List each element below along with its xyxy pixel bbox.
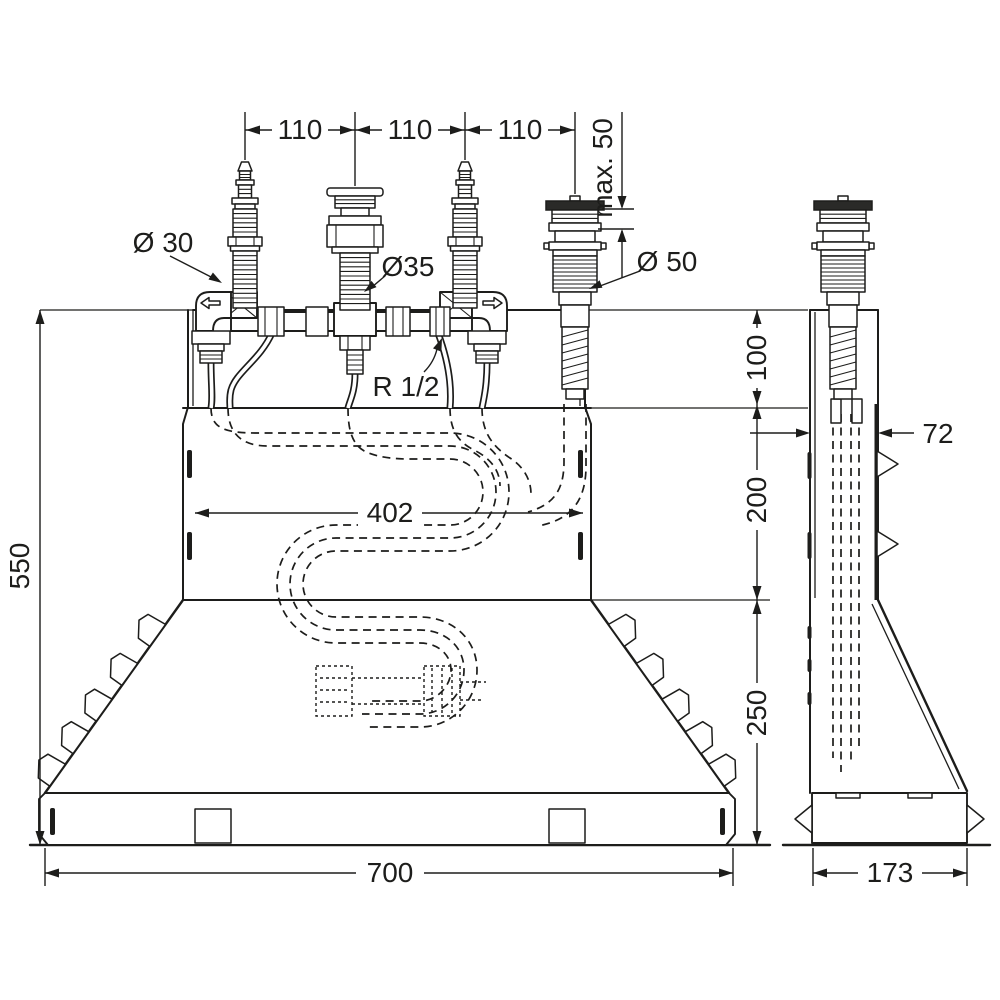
dim-spacing-2: 110	[388, 114, 433, 145]
label-dia-30: Ø 30	[133, 227, 222, 283]
label-dia-35: Ø35	[364, 251, 434, 292]
dim-inner-width-label: 402	[367, 497, 414, 528]
mounting-slot	[187, 532, 192, 560]
installation-drawing: 110 110 110 max. 50 Ø 30 Ø35 Ø 50 R 1/2	[0, 0, 1000, 1000]
mounting-plate-edge	[875, 404, 880, 600]
dim-spacing-1: 110	[278, 114, 323, 145]
label-thread: R 1/2	[373, 338, 442, 402]
side-base	[812, 793, 967, 843]
side-slot	[808, 692, 812, 705]
elbow-left	[192, 292, 231, 363]
valve-diverter	[327, 188, 383, 310]
hose-coupling-left	[316, 666, 352, 716]
dim-spacing-3: 110	[498, 114, 543, 145]
dim-base-width-label: 700	[367, 857, 414, 888]
mounting-slot	[578, 532, 583, 560]
side-anchor-tab	[877, 531, 898, 557]
side-base-tab-left	[795, 805, 812, 833]
side-anchor-tab	[877, 451, 898, 477]
dia-30-label: Ø 30	[133, 227, 194, 258]
side-hidden-hoses	[833, 414, 859, 772]
spout-connection-side	[812, 196, 874, 399]
side-slope-edge	[878, 600, 967, 791]
base-slot	[720, 808, 725, 835]
side-slot	[808, 659, 812, 672]
base-slot	[50, 808, 55, 835]
dim-side-base-width-label: 173	[867, 857, 914, 888]
thread-label: R 1/2	[373, 371, 440, 402]
base-cutout	[195, 809, 231, 843]
dia-50-label: Ø 50	[637, 246, 698, 277]
side-slot	[808, 452, 812, 479]
technical-drawing-page: 110 110 110 max. 50 Ø 30 Ø35 Ø 50 R 1/2	[0, 0, 1000, 1000]
mounting-slot	[578, 450, 583, 478]
dim-max-depth-label: max. 50	[587, 118, 618, 218]
dim-side-base-width: 173	[813, 848, 967, 888]
valve-hot	[228, 162, 262, 308]
mounting-slot	[187, 450, 192, 478]
dim-side-depth-label: 72	[922, 418, 953, 449]
side-slot	[808, 626, 812, 639]
dim-base-width: 700	[45, 848, 733, 888]
dim-total-height-label: 550	[4, 543, 35, 590]
dim-spacing-chain: 110 110 110	[245, 112, 575, 194]
hose-loops	[211, 404, 586, 727]
dim-inner-width: 402	[195, 497, 583, 528]
side-slot	[808, 532, 812, 559]
label-dia-50: Ø 50	[589, 246, 697, 289]
base-cutout	[549, 809, 585, 843]
side-base-tab-right	[967, 805, 984, 833]
dia-35-label: Ø35	[382, 251, 435, 282]
spout-connection	[544, 196, 606, 399]
tee-fitting	[334, 303, 376, 374]
dim-middle-section-label: 200	[741, 477, 772, 524]
anchor-tabs-left	[30, 610, 165, 786]
dim-upper-section-label: 100	[741, 335, 772, 382]
dim-right-chain: 100 200 250	[741, 310, 772, 845]
anchor-tabs-right	[609, 610, 744, 786]
dim-lower-section-label: 250	[741, 690, 772, 737]
valve-cold	[448, 162, 482, 308]
base-rail	[39, 793, 735, 845]
side-view	[783, 196, 990, 845]
